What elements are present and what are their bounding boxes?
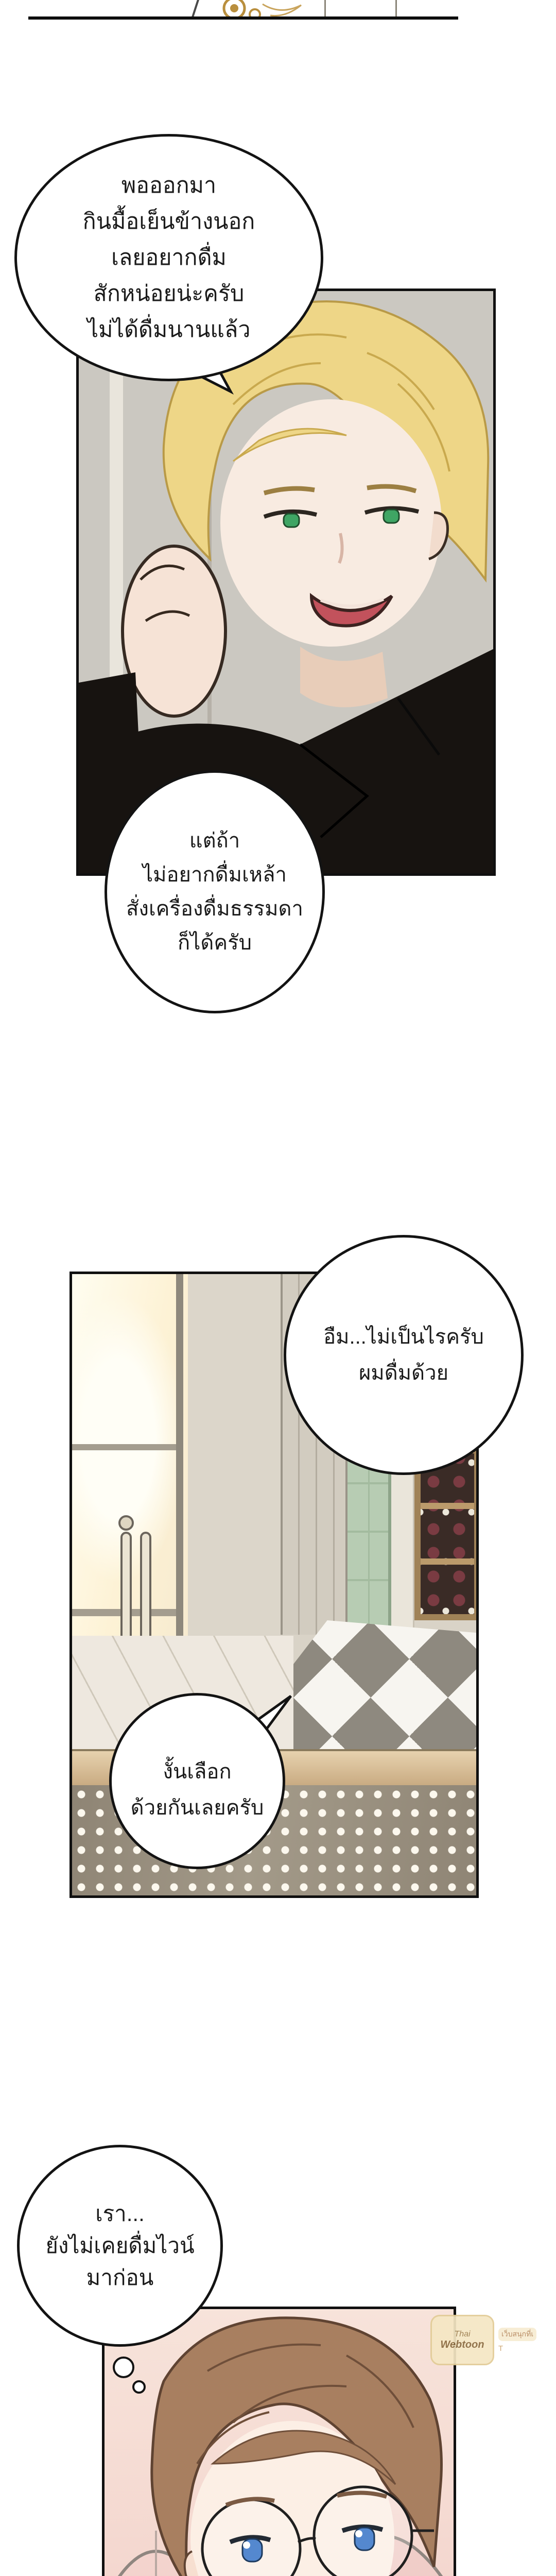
bubble-line: งั้นเลือก — [163, 1754, 231, 1790]
checkered-floor — [293, 1620, 479, 1749]
speech-bubble-3: อืม...ไม่เป็นไรครับ ผมดื่มด้วย — [284, 1235, 524, 1475]
speech-bubble-4: งั้นเลือก ด้วยกันเลยครับ — [109, 1693, 285, 1869]
watermark-caption: เว็บสนุกที่เ T — [498, 2328, 536, 2353]
panel-3-art — [105, 2309, 456, 2576]
watermark-caption-line: เว็บสนุกที่เ — [498, 2328, 536, 2341]
bubble-line: ผมดื่มด้วย — [359, 1355, 448, 1391]
bubble-line: ก็ได้ครับ — [178, 926, 252, 960]
bubble-line: ยังไม่เคยดื่มไวน์ — [45, 2230, 194, 2262]
watermark: Thai Webtoon เว็บสนุกที่เ T — [430, 2314, 556, 2366]
panel-3 — [102, 2307, 456, 2576]
bubble-line: ไม่อยากดื่มเหล้า — [143, 858, 287, 892]
thought-trail-dot — [113, 2357, 134, 2378]
gold-ornament — [28, 0, 458, 20]
bubble-line: มาก่อน — [86, 2262, 154, 2294]
door-handle — [140, 1532, 151, 1650]
watermark-brand-bottom: Webtoon — [440, 2339, 484, 2351]
bubble-line: ไม่ได้ดื่มนานแล้ว — [88, 312, 251, 348]
bubble-line: สักหน่อยน่ะครับ — [94, 276, 245, 312]
watermark-badge: Thai Webtoon — [430, 2315, 494, 2365]
bubble-line: เรา... — [95, 2198, 145, 2230]
thought-trail-dot — [132, 2380, 146, 2394]
bubble-line: ด้วยกันเลยครับ — [131, 1790, 264, 1826]
bubble-line: กินมื้อเย็นข้างนอก — [83, 204, 255, 240]
bubble-line: สั่งเครื่องดื่มธรรมดา — [126, 892, 303, 926]
watermark-caption-line: T — [498, 2344, 536, 2353]
speech-bubble-2: แต่ถ้า ไม่อยากดื่มเหล้า สั่งเครื่องดื่มธ… — [105, 770, 325, 1013]
panel-top-sliver — [28, 0, 458, 20]
speech-bubble-1: พอออกมา กินมื้อเย็นข้างนอก เลยอยากดื่ม ส… — [14, 134, 323, 381]
door-handle — [120, 1532, 132, 1650]
thought-bubble-5: เรา... ยังไม่เคยดื่มไวน์ มาก่อน — [17, 2145, 223, 2347]
window-frame — [72, 1444, 183, 1450]
watermark-brand-top: Thai — [454, 2330, 470, 2339]
door-handle-knob — [118, 1515, 134, 1531]
bubble-line: แต่ถ้า — [189, 824, 240, 858]
bubble-line: อืม...ไม่เป็นไรครับ — [323, 1319, 484, 1355]
webtoon-page: พอออกมา กินมื้อเย็นข้างนอก เลยอยากดื่ม ส… — [0, 0, 556, 2576]
bubble-line: เลยอยากดื่ม — [111, 240, 227, 276]
bubble-line: พอออกมา — [121, 167, 216, 204]
